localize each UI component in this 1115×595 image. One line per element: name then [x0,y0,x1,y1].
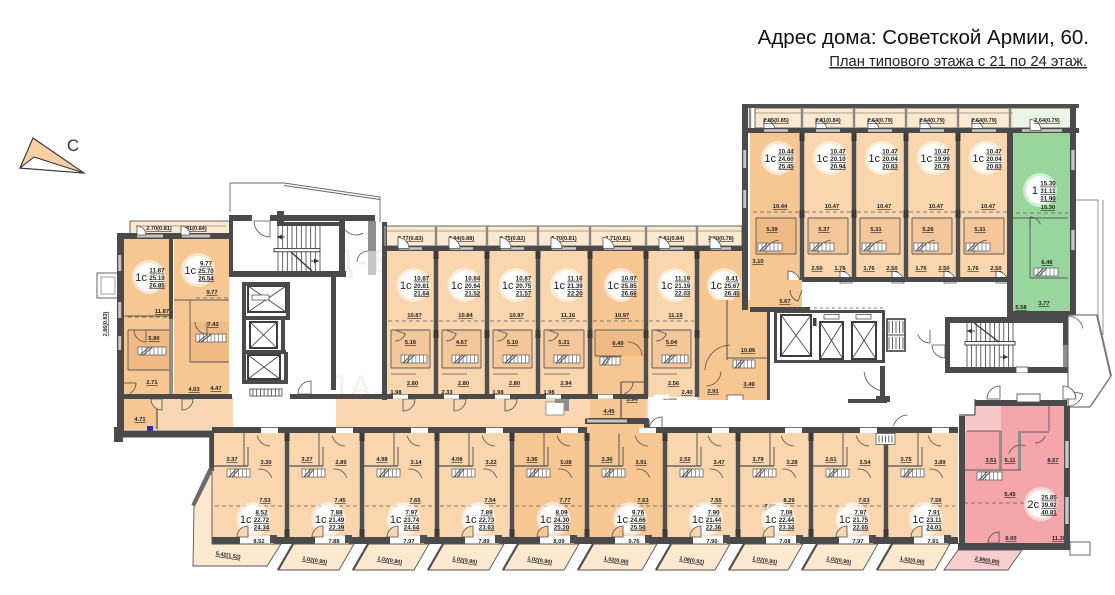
svg-text:10.47: 10.47 [934,149,950,156]
svg-text:39.92: 39.92 [1041,502,1057,509]
svg-text:6.49: 6.49 [612,341,624,347]
svg-text:9.77: 9.77 [206,290,217,296]
svg-text:2.50: 2.50 [811,266,822,272]
svg-text:10.47: 10.47 [830,149,846,156]
svg-text:20.83: 20.83 [986,163,1002,170]
svg-text:6.46: 6.46 [1041,260,1053,266]
svg-text:1с: 1с [692,514,704,526]
svg-text:21.39: 21.39 [567,283,583,290]
svg-text:3.37: 3.37 [226,457,237,463]
svg-text:5.45: 5.45 [1004,492,1016,498]
svg-text:10.47: 10.47 [882,149,898,156]
svg-text:2.64(0.79): 2.64(0.79) [919,118,945,124]
svg-text:25.20: 25.20 [554,524,570,531]
svg-text:10.87: 10.87 [407,313,422,319]
svg-text:4.47: 4.47 [210,386,221,392]
svg-text:22.44: 22.44 [779,517,795,524]
svg-text:23.74: 23.74 [404,517,420,524]
svg-text:22.39: 22.39 [329,524,345,531]
svg-text:10.84: 10.84 [465,276,481,283]
svg-text:3.91: 3.91 [635,460,647,466]
svg-text:2.80: 2.80 [458,381,469,387]
svg-text:11.19: 11.19 [675,276,691,283]
svg-text:1.76: 1.76 [863,266,875,272]
svg-text:20.78: 20.78 [934,163,950,170]
svg-text:1с: 1с [502,280,514,292]
svg-text:3.89: 3.89 [934,460,946,466]
svg-text:2.61: 2.61 [825,457,837,463]
svg-text:7.54: 7.54 [484,498,496,504]
svg-text:8.57: 8.57 [1047,458,1058,464]
svg-text:7.65: 7.65 [409,498,421,504]
svg-text:21.52: 21.52 [465,290,481,297]
svg-text:10.47: 10.47 [877,204,892,210]
svg-text:22.65: 22.65 [853,524,869,531]
svg-text:25.85: 25.85 [621,283,637,290]
svg-text:7.77: 7.77 [559,498,570,504]
svg-text:2.64(0.79): 2.64(0.79) [1034,118,1060,124]
svg-text:7.08: 7.08 [780,510,793,517]
svg-text:5.10: 5.10 [507,340,518,346]
svg-text:1с: 1с [839,514,851,526]
svg-text:9.77: 9.77 [200,261,213,268]
svg-text:1.76: 1.76 [834,266,846,272]
svg-text:5.90: 5.90 [148,336,159,342]
svg-text:20.75: 20.75 [516,283,532,290]
svg-text:3.77: 3.77 [1038,301,1049,307]
svg-text:24.60: 24.60 [778,156,794,163]
svg-text:3.75: 3.75 [900,457,912,463]
svg-text:5.11: 5.11 [1005,458,1017,464]
svg-text:5.39: 5.39 [766,227,778,233]
svg-text:19.99: 19.99 [934,156,950,163]
svg-text:23.11: 23.11 [926,517,942,524]
svg-text:3.36: 3.36 [601,457,613,463]
svg-text:20.94: 20.94 [830,163,846,170]
svg-text:25.70: 25.70 [198,268,214,275]
svg-text:3.30: 3.30 [260,460,271,466]
svg-text:5.31: 5.31 [974,227,986,233]
svg-text:10.87: 10.87 [509,313,524,319]
svg-text:7.91: 7.91 [928,510,941,517]
svg-text:31.90: 31.90 [1040,195,1056,202]
svg-text:22.72: 22.72 [254,517,270,524]
svg-text:24.66: 24.66 [630,517,646,524]
svg-text:5.31: 5.31 [870,227,882,233]
svg-text:2с: 2с [1027,499,1039,511]
svg-text:23.63: 23.63 [479,524,495,531]
svg-text:1с: 1с [972,153,984,165]
svg-text:5.04: 5.04 [666,340,678,346]
svg-text:9.76: 9.76 [632,510,645,517]
svg-text:24.01: 24.01 [926,524,942,531]
svg-text:20.81: 20.81 [414,283,430,290]
svg-text:7.63: 7.63 [858,498,870,504]
svg-text:4.08: 4.08 [451,457,463,463]
svg-text:2.50: 2.50 [886,266,897,272]
svg-text:1с: 1с [816,153,828,165]
svg-text:3.22: 3.22 [485,460,496,466]
svg-text:1: 1 [1032,185,1038,197]
svg-text:1с: 1с [553,280,565,292]
svg-text:7.97: 7.97 [854,510,867,517]
svg-text:1с: 1с [135,272,147,284]
svg-text:2.64(0.79): 2.64(0.79) [971,118,997,124]
svg-text:1с: 1с [315,514,327,526]
svg-text:3.10: 3.10 [752,259,763,265]
svg-text:10.86: 10.86 [741,348,756,354]
svg-text:11.87: 11.87 [155,309,169,315]
svg-text:10.87: 10.87 [414,276,430,283]
svg-text:7.43: 7.43 [207,322,219,328]
svg-text:2.89: 2.89 [335,460,347,466]
svg-text:10.47: 10.47 [986,149,1002,156]
svg-text:1с: 1с [764,153,776,165]
svg-text:4.03: 4.03 [188,387,200,393]
svg-text:2.71: 2.71 [146,380,158,386]
svg-text:С: С [67,136,79,155]
svg-text:8.09: 8.09 [555,510,568,517]
svg-text:11.87: 11.87 [149,268,165,275]
svg-text:2.85(0.85): 2.85(0.85) [763,118,789,124]
svg-text:25.56: 25.56 [630,524,646,531]
svg-text:3.51: 3.51 [985,458,997,464]
svg-text:7.53: 7.53 [259,498,271,504]
svg-text:21.44: 21.44 [706,517,722,524]
svg-text:22.03: 22.03 [675,290,691,297]
svg-text:22.73: 22.73 [479,517,495,524]
svg-text:1.76: 1.76 [967,266,979,272]
svg-text:26.66: 26.66 [621,290,637,297]
svg-text:10.44: 10.44 [778,149,794,156]
svg-text:1с: 1с [465,514,477,526]
svg-text:3.49: 3.49 [743,382,755,388]
svg-text:7.45: 7.45 [334,498,346,504]
svg-text:7.63: 7.63 [637,498,649,504]
svg-text:3.14: 3.14 [410,460,422,466]
svg-text:2.80: 2.80 [407,381,418,387]
svg-text:5.31: 5.31 [558,340,570,346]
svg-text:1с: 1с [710,280,722,292]
svg-text:1с: 1с [240,514,252,526]
svg-text:3.79: 3.79 [752,457,764,463]
svg-text:26.85: 26.85 [149,282,165,289]
svg-text:1с: 1с [607,280,619,292]
svg-text:8.29: 8.29 [783,498,795,504]
svg-text:8.41: 8.41 [726,276,739,283]
svg-text:21.19: 21.19 [675,283,691,290]
svg-text:2.40: 2.40 [681,390,692,396]
svg-text:3.28: 3.28 [786,460,798,466]
svg-text:10.47: 10.47 [825,204,840,210]
svg-text:21.57: 21.57 [516,290,532,297]
svg-text:1с: 1с [451,280,463,292]
svg-text:7.55: 7.55 [710,498,722,504]
svg-text:7.89: 7.89 [480,510,493,517]
svg-text:10.97: 10.97 [615,313,630,319]
svg-text:2.50: 2.50 [990,266,1001,272]
svg-text:25.67: 25.67 [724,283,740,290]
svg-text:15.30: 15.30 [1041,205,1056,211]
svg-text:1с: 1с [868,153,880,165]
svg-text:3.47: 3.47 [713,460,724,466]
svg-text:2.91: 2.91 [707,389,719,395]
svg-text:10.47: 10.47 [981,204,996,210]
svg-text:24.30: 24.30 [554,517,570,524]
svg-text:3.27: 3.27 [301,457,312,463]
svg-text:7.90: 7.90 [707,510,720,517]
svg-text:2.81(0.84): 2.81(0.84) [815,118,841,124]
svg-text:21.75: 21.75 [853,517,869,524]
svg-text:5.58: 5.58 [1015,305,1027,311]
svg-text:20.04: 20.04 [882,156,898,163]
svg-text:2.80: 2.80 [509,381,520,387]
svg-text:22.36: 22.36 [706,524,722,531]
svg-text:7.88: 7.88 [330,510,343,517]
svg-text:10.97: 10.97 [621,276,637,283]
svg-text:11.16: 11.16 [561,313,576,319]
svg-text:4.71: 4.71 [134,417,146,423]
svg-text:10.84: 10.84 [458,313,473,319]
svg-text:25.45: 25.45 [778,163,794,170]
svg-text:1с: 1с [616,514,628,526]
svg-text:5.26: 5.26 [922,227,934,233]
svg-text:5.67: 5.67 [779,299,790,305]
svg-text:5.08: 5.08 [560,460,572,466]
svg-text:7.56: 7.56 [930,498,942,504]
svg-text:1.76: 1.76 [915,266,927,272]
svg-text:1с: 1с [912,514,924,526]
svg-text:2.70(0.81): 2.70(0.81) [146,226,172,232]
svg-text:8.52: 8.52 [255,510,268,517]
svg-text:20.64: 20.64 [465,283,481,290]
svg-text:Адрес дома: Советской Армии, 6: Адрес дома: Советской Армии, 60. [758,26,1089,49]
svg-text:40.81: 40.81 [1041,509,1057,516]
svg-text:20.10: 20.10 [830,156,846,163]
svg-text:24.64: 24.64 [404,524,420,531]
svg-text:21.64: 21.64 [414,290,430,297]
svg-text:2.86(0.83): 2.86(0.83) [103,312,109,337]
svg-text:1с: 1с [540,514,552,526]
svg-text:5.37: 5.37 [818,227,829,233]
svg-text:2.52: 2.52 [679,457,690,463]
svg-text:25.19: 25.19 [149,275,165,282]
svg-text:22.20: 22.20 [567,290,583,297]
svg-text:20.83: 20.83 [882,163,898,170]
svg-text:1с: 1с [661,280,673,292]
svg-text:7.97: 7.97 [405,510,418,517]
svg-text:23.34: 23.34 [779,524,795,531]
svg-text:4.67: 4.67 [456,340,467,346]
svg-text:6.00: 6.00 [1005,536,1016,542]
svg-text:10.87: 10.87 [516,276,532,283]
svg-text:20.04: 20.04 [986,156,1002,163]
svg-text:3.54: 3.54 [859,460,871,466]
svg-text:4.45: 4.45 [603,409,615,415]
svg-text:31.11: 31.11 [1040,188,1056,195]
svg-text:3.36: 3.36 [526,457,538,463]
svg-text:5.16: 5.16 [405,340,417,346]
svg-text:11.16: 11.16 [567,276,583,283]
svg-text:2.64(0.79): 2.64(0.79) [867,118,893,124]
svg-text:1с: 1с [765,514,777,526]
svg-text:2.56: 2.56 [668,381,680,387]
svg-text:2.94: 2.94 [560,381,572,387]
svg-text:24.34: 24.34 [254,524,270,531]
svg-text:1с: 1с [390,514,402,526]
svg-text:26.45: 26.45 [724,290,740,297]
svg-text:1с: 1с [400,280,412,292]
svg-text:25.85: 25.85 [1041,495,1057,502]
svg-text:1с: 1с [920,153,932,165]
svg-text:21.49: 21.49 [329,517,345,524]
svg-text:4.98: 4.98 [376,457,388,463]
svg-text:2.50: 2.50 [938,266,949,272]
svg-text:10.47: 10.47 [929,204,944,210]
svg-text:1с: 1с [184,265,196,277]
svg-text:10.44: 10.44 [773,204,788,210]
svg-text:26.54: 26.54 [198,275,214,282]
svg-text:11.19: 11.19 [668,313,683,319]
svg-text:План типового этажа с 21 по 24: План типового этажа с 21 по 24 этаж. [829,54,1087,70]
svg-text:15.30: 15.30 [1040,181,1056,188]
